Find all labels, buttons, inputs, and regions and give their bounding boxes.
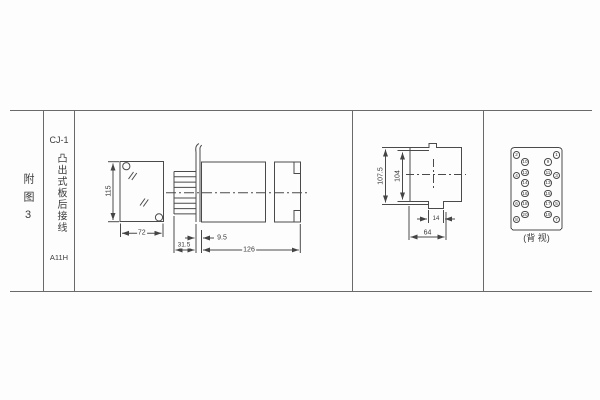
- terminal-5: 5: [553, 200, 561, 208]
- dim-body-length: 126: [242, 246, 256, 253]
- terminal-17: 17: [544, 200, 552, 208]
- dim-profile-width: 64: [423, 230, 433, 237]
- dim-profile-case: 104: [395, 169, 402, 183]
- dim-profile-tab: 14: [433, 216, 440, 222]
- dim-panel-offset: 9.5: [216, 235, 228, 242]
- relay-model-label: CJ-1: [44, 135, 74, 145]
- terminal-20: 20: [521, 211, 529, 219]
- drawing-code-label: A11H: [44, 253, 74, 262]
- terminal-1: 1: [553, 151, 561, 159]
- table-grid: [10, 111, 592, 292]
- terminal-6: 6: [513, 200, 521, 208]
- front-view-drawing: [108, 162, 163, 237]
- terminal-2: 2: [513, 151, 521, 159]
- terminal-4: 4: [513, 172, 521, 180]
- terminal-11: 11: [544, 169, 552, 177]
- terminal-18: 18: [521, 200, 529, 208]
- terminal-9: 9: [544, 158, 552, 166]
- back-view-caption: (背 视): [506, 231, 567, 244]
- terminal-10: 10: [521, 158, 529, 166]
- terminal-12: 12: [521, 169, 529, 177]
- drawing-sheet: 附图3 CJ-1 凸出式板后接线 A11H 115 72 31.5 9.5 12…: [0, 0, 600, 400]
- dim-front-width: 72: [137, 230, 147, 237]
- terminal-7: 7: [553, 216, 561, 224]
- terminal-16: 16: [521, 190, 529, 198]
- terminal-19: 19: [544, 211, 552, 219]
- dim-profile-overall: 107.5: [378, 166, 385, 186]
- line-art: [0, 0, 600, 400]
- terminal-14: 14: [521, 179, 529, 187]
- figure-index-label: 附图3: [20, 173, 36, 228]
- dim-front-height: 115: [105, 184, 112, 197]
- mount-type-label: 凸出式板后接线: [53, 153, 68, 234]
- terminal-8: 8: [513, 216, 521, 224]
- dim-pin-length: 31.5: [177, 242, 192, 249]
- terminal-15: 15: [544, 190, 552, 198]
- terminal-13: 13: [544, 179, 552, 187]
- profile-view-drawing: [382, 144, 466, 241]
- side-view-drawing: [166, 144, 308, 253]
- terminal-3: 3: [553, 172, 561, 180]
